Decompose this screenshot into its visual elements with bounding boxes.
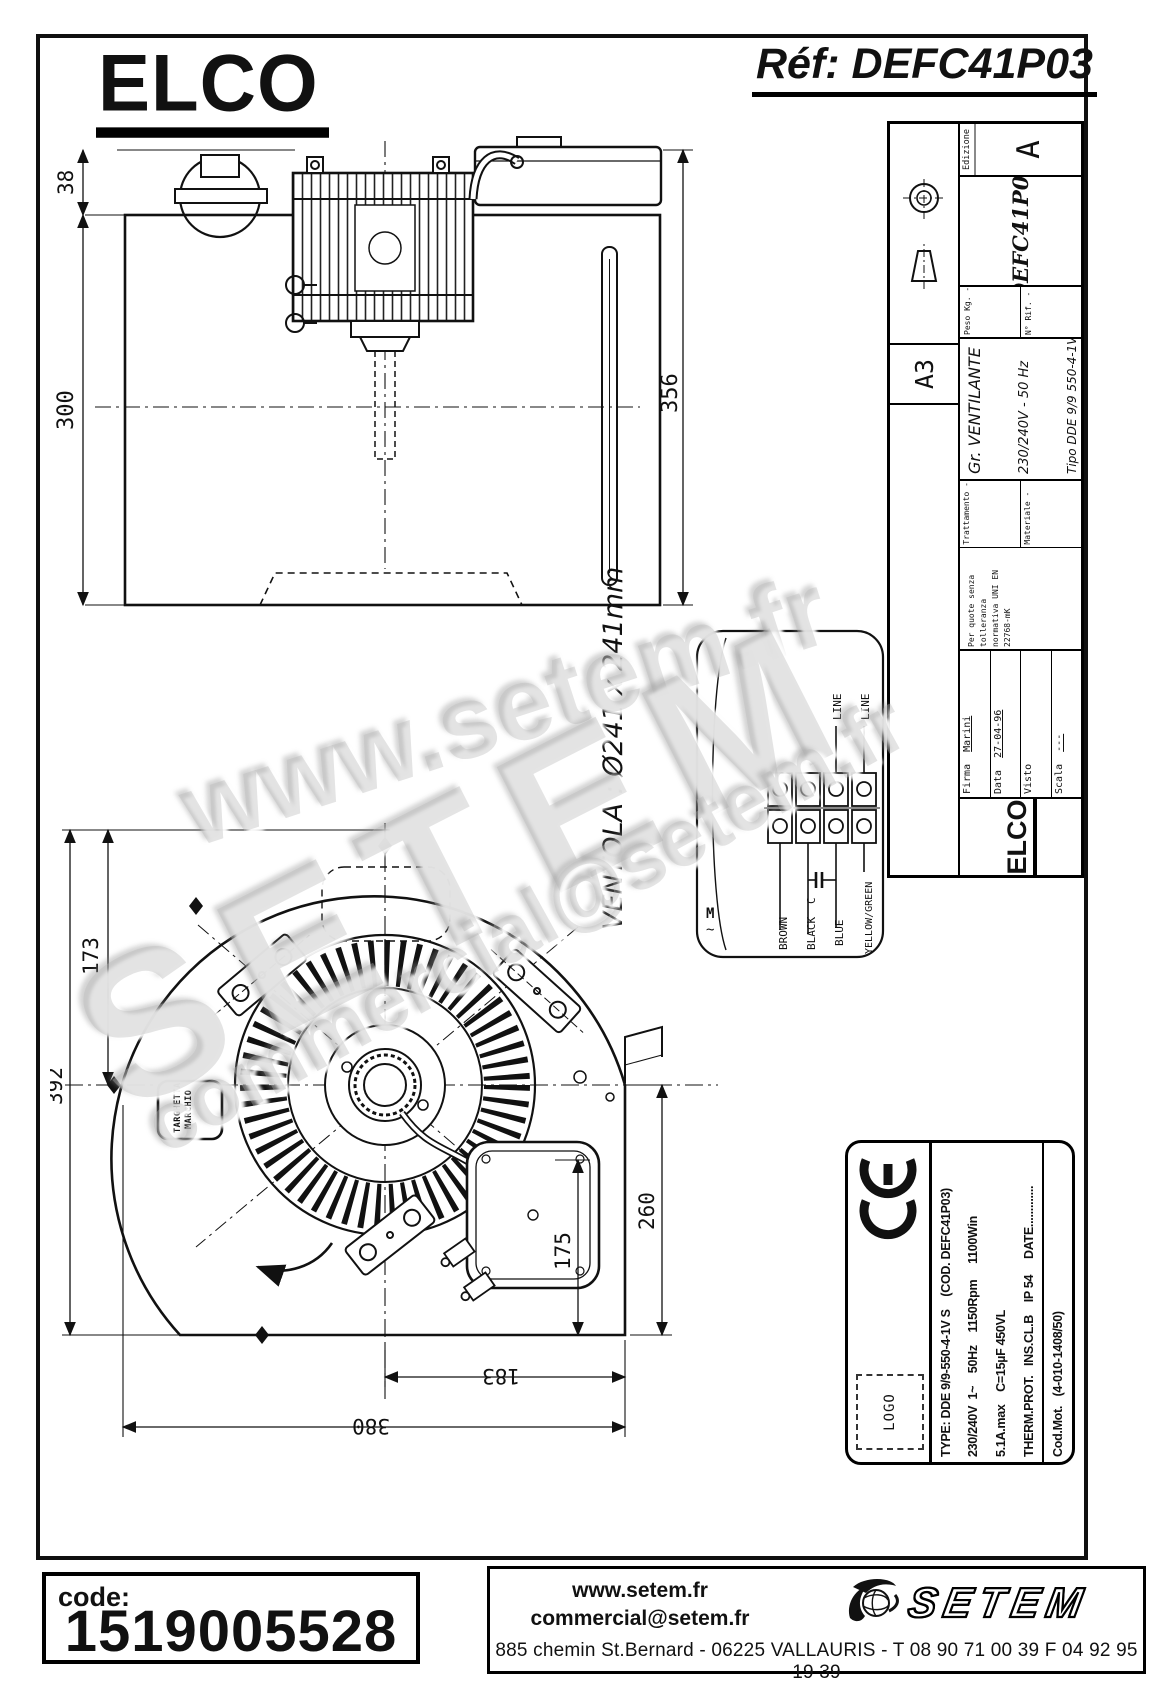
crosshair-circle-icon <box>901 176 947 222</box>
title-block-empty-cell <box>890 403 960 875</box>
title-block-brand: ELCO <box>960 797 1081 875</box>
peso-row: Peso Kg. - <box>960 287 1021 337</box>
footer-email: commercial@setem.fr <box>490 1605 790 1633</box>
motor-wave-label: ~ <box>706 922 714 938</box>
plate-protection-row: THERM.PROT. INS.CL.B IP 54 DATE.........… <box>1015 1143 1043 1462</box>
sheet-format: A3 <box>890 343 960 403</box>
dim-175-label: 175 <box>551 1232 575 1270</box>
tolerance-note: Per quote senza tolleranza normativa UNI… <box>960 547 1081 649</box>
tolerance-cell: Per quote senza tolleranza normativa UNI… <box>960 479 1081 649</box>
scala-row: Scala --- <box>1052 651 1082 797</box>
dim-300-label: 300 <box>55 390 79 430</box>
weight-cell: Peso Kg. - N° Rif. - <box>960 285 1081 337</box>
capacitor-label: C <box>805 897 818 904</box>
side-view-drawing: 173 392 260 175 183 380 TARGHETTA MARCHI… <box>50 815 735 1455</box>
visto-row: Visto <box>1021 651 1052 797</box>
footer-website: www.setem.fr <box>490 1577 790 1605</box>
setem-swoosh-icon <box>845 1577 901 1629</box>
fan-size-note: VENTOLA : Ø241 x 241mm <box>598 567 629 930</box>
wire-line-b-label: LINE <box>859 694 872 721</box>
elco-logo: ELCO <box>96 46 329 137</box>
dim-173-label: 173 <box>79 937 103 975</box>
wire-line-a-label: LINE <box>831 694 844 721</box>
product-cell: Gr. VENTILANTE 230/240V - 50 Hz Tipo DDE… <box>960 337 1081 479</box>
capacitor-box <box>467 1142 599 1288</box>
terminal-strip <box>764 773 880 843</box>
data-row: Data 27-04-96 <box>991 651 1022 797</box>
product-group: Gr. VENTILANTE <box>965 341 984 474</box>
ref-title: Réf: DEFC41P03 <box>752 40 1097 97</box>
plate-capacitor-row: 5.1A.max C=15µF 450VL <box>987 1143 1015 1462</box>
wire-brown-label: BROWN <box>777 917 790 950</box>
wiring-diagram: LINE LINE C BROWN BLACK BLUE YELLOW/GREE… <box>694 628 886 960</box>
edizione-cell: Edizione A <box>960 124 1081 175</box>
product-tipo: Tipo DDE 9/9 550-4-1V S <box>1065 341 1079 474</box>
wire-yellow-green-label: YELLOW/GREEN <box>864 882 875 954</box>
rating-plate: LOGO TYPE: DDE 9/9-550-4-1V S (COD. DEFC… <box>845 1140 1075 1465</box>
footer-info-box: www.setem.fr commercial@setem.fr SETEM 8… <box>487 1566 1146 1674</box>
dim-183-label: 183 <box>482 1364 520 1388</box>
rif-row: N° Rif. - <box>1021 287 1081 337</box>
footer-code-box: code: 1519005528 <box>42 1572 420 1664</box>
motor-label: M <box>706 906 714 922</box>
logo-placeholder: LOGO <box>856 1374 924 1450</box>
signoff-cell: Firma Marini Data 27-04-96 Visto Scala -… <box>960 649 1081 797</box>
drawing-code-cell: DEFC41P03 <box>960 175 1081 285</box>
materiale-row: Materiale - <box>1021 481 1081 547</box>
plate-electrical-row: 230/240V 1~ 50Hz 1150Rpm 1100Win <box>960 1143 988 1462</box>
firma-row: Firma Marini <box>960 651 991 797</box>
dim-356-label: 356 <box>658 373 683 413</box>
dim-392-label: 392 <box>50 1067 67 1105</box>
dim-380-label: 380 <box>352 1414 390 1438</box>
title-block: A3 ELCO Firma Marini Data 2 <box>887 121 1084 878</box>
cone-projection-icon <box>904 240 944 292</box>
projection-symbols <box>890 124 960 343</box>
setem-wordmark: SETEM <box>904 1579 1092 1627</box>
ce-mark-icon <box>856 1157 920 1241</box>
plate-type-row: TYPE: DDE 9/9-550-4-1V S (COD. DEFC41P03… <box>932 1143 960 1462</box>
front-view-drawing: 38 300 356 <box>55 135 700 615</box>
footer-address: 885 chemin St.Bernard - 06225 VALLAURIS … <box>490 1637 1143 1684</box>
dim-260-label: 260 <box>635 1192 659 1230</box>
setem-logo: SETEM <box>790 1569 1143 1637</box>
wire-black-label: BLACK <box>805 917 818 950</box>
dim-38-label: 38 <box>55 170 78 195</box>
code-value: 1519005528 <box>46 1598 416 1665</box>
trattamento-row: Trattamento - <box>960 481 1021 547</box>
wire-blue-label: BLUE <box>833 920 846 947</box>
product-supply: 230/240V - 50 Hz <box>1017 341 1032 474</box>
plate-motor-code-row: Cod.Mot. (4-010-1408/50) <box>1042 1143 1072 1462</box>
